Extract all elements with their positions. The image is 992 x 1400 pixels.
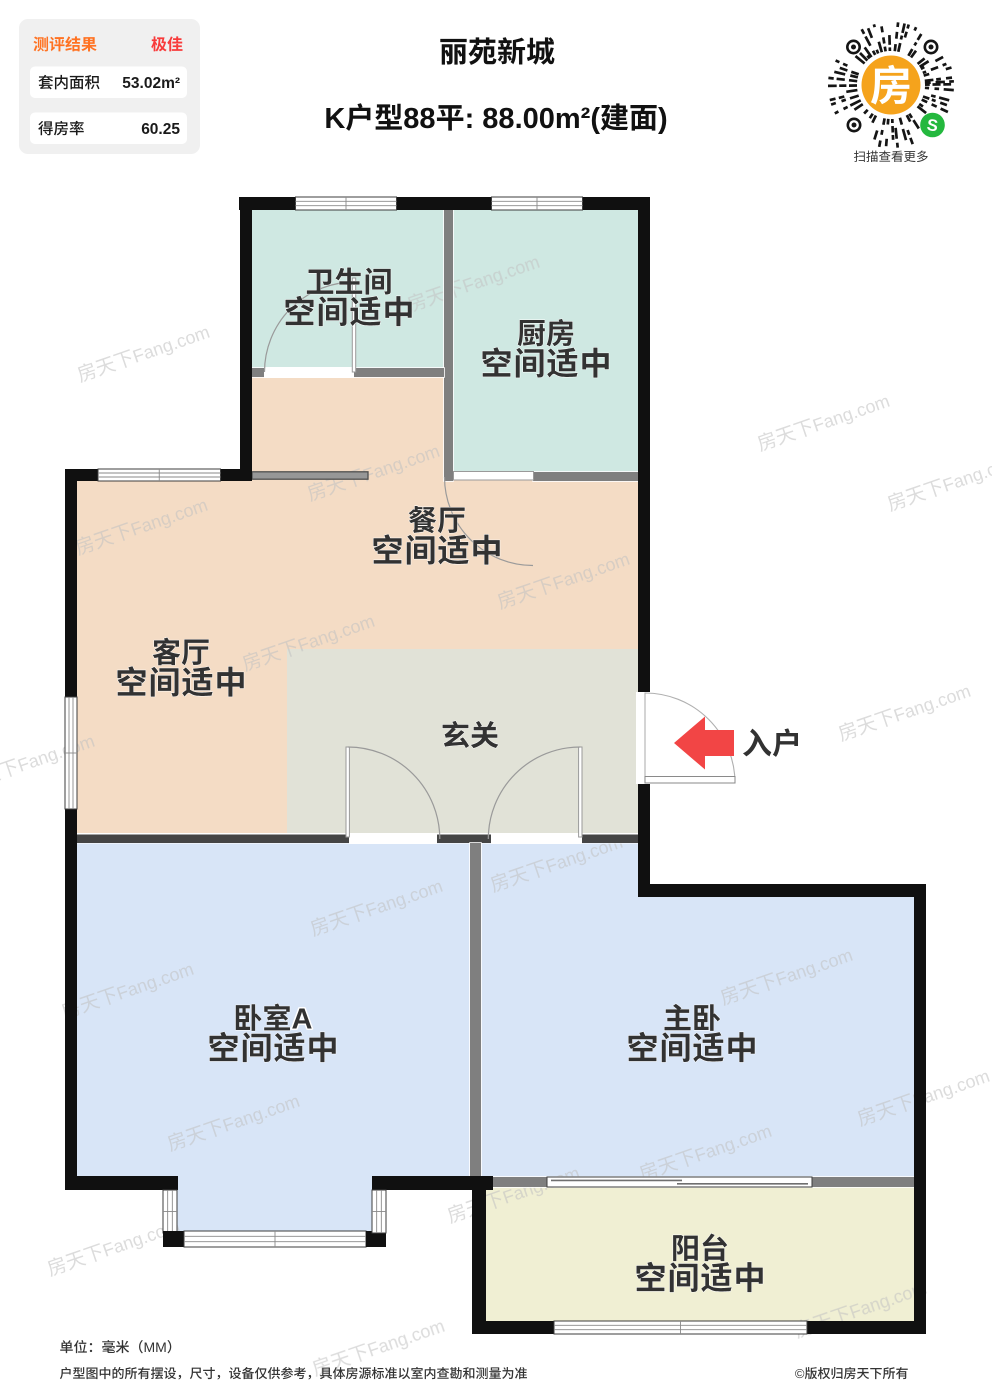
svg-text:©: ©: [795, 1366, 805, 1381]
svg-text:K: K: [324, 103, 345, 135]
svg-text:): ): [658, 103, 668, 135]
svg-text:88: 88: [403, 103, 435, 135]
svg-text:60.25: 60.25: [141, 121, 180, 138]
svg-text:A: A: [292, 1004, 313, 1036]
svg-text:MM: MM: [144, 1339, 167, 1355]
svg-text:: 88.00m²(: : 88.00m²(: [465, 103, 601, 135]
svg-text:53.02m²: 53.02m²: [122, 75, 180, 92]
